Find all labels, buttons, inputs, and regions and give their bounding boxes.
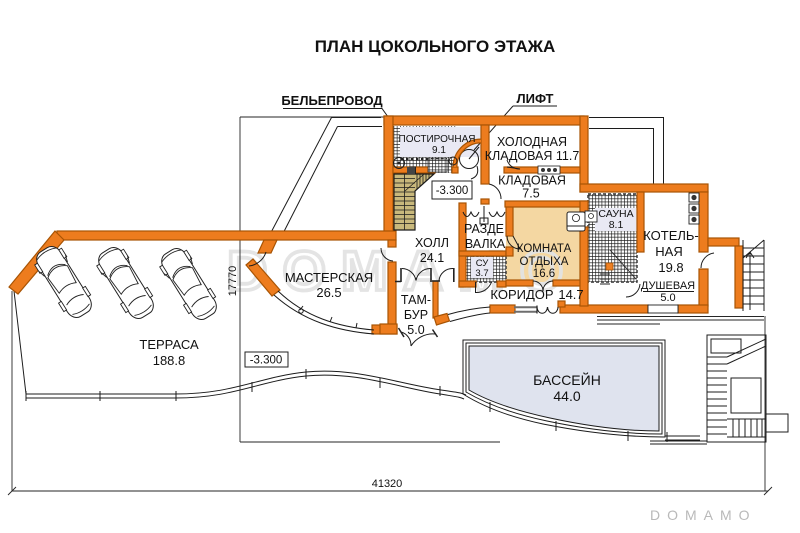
svg-text:БУР: БУР bbox=[404, 308, 428, 322]
svg-text:НАЯ: НАЯ bbox=[655, 244, 682, 259]
svg-text:9.1: 9.1 bbox=[432, 145, 446, 156]
svg-text:8.1: 8.1 bbox=[609, 219, 624, 231]
svg-text:КЛАДОВАЯ: КЛАДОВАЯ bbox=[498, 174, 566, 188]
svg-text:ТАМ-: ТАМ- bbox=[401, 293, 431, 307]
svg-text:ОТДЫХА: ОТДЫХА bbox=[520, 256, 569, 268]
svg-text:188.8: 188.8 bbox=[153, 353, 186, 368]
svg-text:БАССЕЙН: БАССЕЙН bbox=[533, 371, 601, 388]
svg-text:-3.300: -3.300 bbox=[436, 185, 469, 197]
svg-text:44.0: 44.0 bbox=[553, 388, 580, 404]
svg-text:МАСТЕРСКАЯ: МАСТЕРСКАЯ bbox=[285, 270, 373, 285]
svg-text:КОТЕЛЬ-: КОТЕЛЬ- bbox=[643, 228, 699, 243]
svg-text:5.0: 5.0 bbox=[407, 323, 424, 337]
svg-text:26.5: 26.5 bbox=[316, 285, 341, 300]
svg-text:РАЗДЕ: РАЗДЕ bbox=[464, 222, 504, 236]
svg-text:-3.300: -3.300 bbox=[250, 355, 283, 367]
svg-text:17770: 17770 bbox=[227, 266, 239, 297]
svg-text:5.0: 5.0 bbox=[660, 292, 675, 304]
svg-text:3.7: 3.7 bbox=[475, 268, 488, 279]
svg-text:КОМНАТА: КОМНАТА bbox=[517, 243, 572, 255]
svg-text:14.7: 14.7 bbox=[558, 287, 583, 302]
svg-text:41320: 41320 bbox=[372, 478, 403, 490]
svg-text:7.5: 7.5 bbox=[522, 187, 539, 201]
svg-text:ТЕРРАСА: ТЕРРАСА bbox=[139, 337, 199, 352]
svg-text:DOMAMO: DOMAMO bbox=[650, 507, 757, 523]
svg-text:ПЛАН ЦОКОЛЬНОГО ЭТАЖА: ПЛАН ЦОКОЛЬНОГО ЭТАЖА bbox=[315, 37, 556, 56]
svg-text:КЛАДОВАЯ 11.7: КЛАДОВАЯ 11.7 bbox=[485, 149, 580, 163]
svg-text:ДУШЕВАЯ: ДУШЕВАЯ bbox=[641, 280, 695, 292]
svg-text:24.1: 24.1 bbox=[420, 251, 444, 265]
svg-text:16.6: 16.6 bbox=[533, 268, 555, 280]
svg-text:БЕЛЬЕПРОВОД: БЕЛЬЕПРОВОД bbox=[281, 93, 383, 108]
svg-text:ХОЛОДНАЯ: ХОЛОДНАЯ bbox=[497, 135, 567, 149]
svg-text:ЛИФТ: ЛИФТ bbox=[516, 91, 553, 106]
svg-text:ХОЛЛ: ХОЛЛ bbox=[415, 236, 449, 250]
svg-text:19.8: 19.8 bbox=[658, 260, 683, 275]
svg-text:ВАЛКА: ВАЛКА bbox=[465, 237, 506, 251]
svg-text:ПОСТИРОЧНАЯ: ПОСТИРОЧНАЯ bbox=[399, 134, 476, 145]
svg-text:КОРИДОР: КОРИДОР bbox=[490, 287, 553, 302]
